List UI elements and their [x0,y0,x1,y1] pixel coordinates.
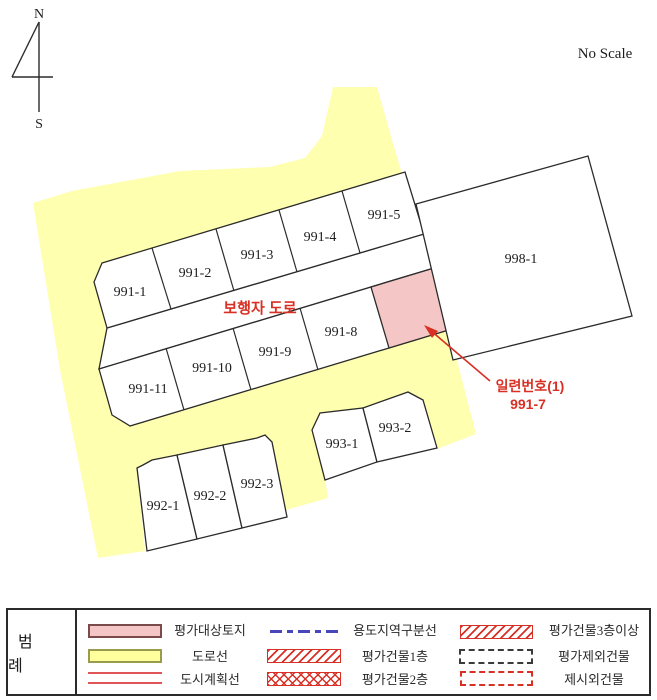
parcel-label-991-8: 991-8 [325,325,358,340]
parcel-label-998-1: 998-1 [505,252,538,267]
legend-item-label: 평가대상토지 [162,622,258,640]
red-double-line-swatch [88,672,162,684]
legend-item-label: 용도지역구분선 [345,622,445,640]
parcel-label-991-2: 991-2 [179,266,212,281]
parcel-label-992-2: 992-2 [194,489,227,504]
parcel-label-993-2: 993-2 [379,421,412,436]
parcel-label-992-3: 992-3 [241,477,274,492]
legend-item-label: 도시계획선 [162,671,258,689]
pink-box-swatch [88,624,162,638]
compass-icon [12,22,53,112]
cadastral-map-page: 991-1 991-2 991-3 991-4 991-5 991-11 991… [0,0,657,700]
parcel-label-991-11: 991-11 [128,382,167,397]
red-hatch-swatch [267,649,341,663]
legend-item-label: 도로선 [162,648,258,666]
red-crosshatch-swatch [267,672,341,686]
pedestrian-road-label: 보행자 도로 [223,300,296,317]
legend-item-label: 제시외건물 [538,671,650,689]
parcel-label-993-1: 993-1 [326,437,359,452]
legend-item-label: 평가건물1층 [345,648,445,666]
legend-item-label: 평가건물2층 [345,671,445,689]
compass-south-label: S [35,117,43,132]
legend: 범 례 평가대상토지 용도지역구분선 평가건물3층이상 도로선 평가건물1층 평… [6,608,651,696]
legend-title: 범 례 [8,610,75,694]
parcel-label-991-3: 991-3 [241,248,274,263]
legend-item-label: 평가건물3층이상 [538,622,650,640]
annotation-line2: 991-7 [510,396,546,412]
parcel-label-991-5: 991-5 [368,208,401,223]
yellow-box-swatch [88,649,162,663]
legend-divider [75,610,77,694]
annotation-line1: 일련번호(1) [496,378,565,394]
black-dashed-box-swatch [459,649,533,664]
parcel-label-991-4: 991-4 [304,230,337,245]
cadastral-map: 991-1 991-2 991-3 991-4 991-5 991-11 991… [0,0,657,700]
parcel-label-992-1: 992-1 [147,499,180,514]
parcel-label-991-10: 991-10 [192,361,232,376]
blue-dashed-line-swatch [270,630,338,633]
legend-item-label: 평가제외건물 [538,648,650,666]
parcel-label-991-1: 991-1 [114,285,147,300]
no-scale-label: No Scale [578,46,633,62]
compass-north-label: N [34,7,44,22]
red-hatch-swatch [460,625,533,639]
parcel-label-991-9: 991-9 [259,345,292,360]
red-dashed-box-swatch [460,671,533,686]
